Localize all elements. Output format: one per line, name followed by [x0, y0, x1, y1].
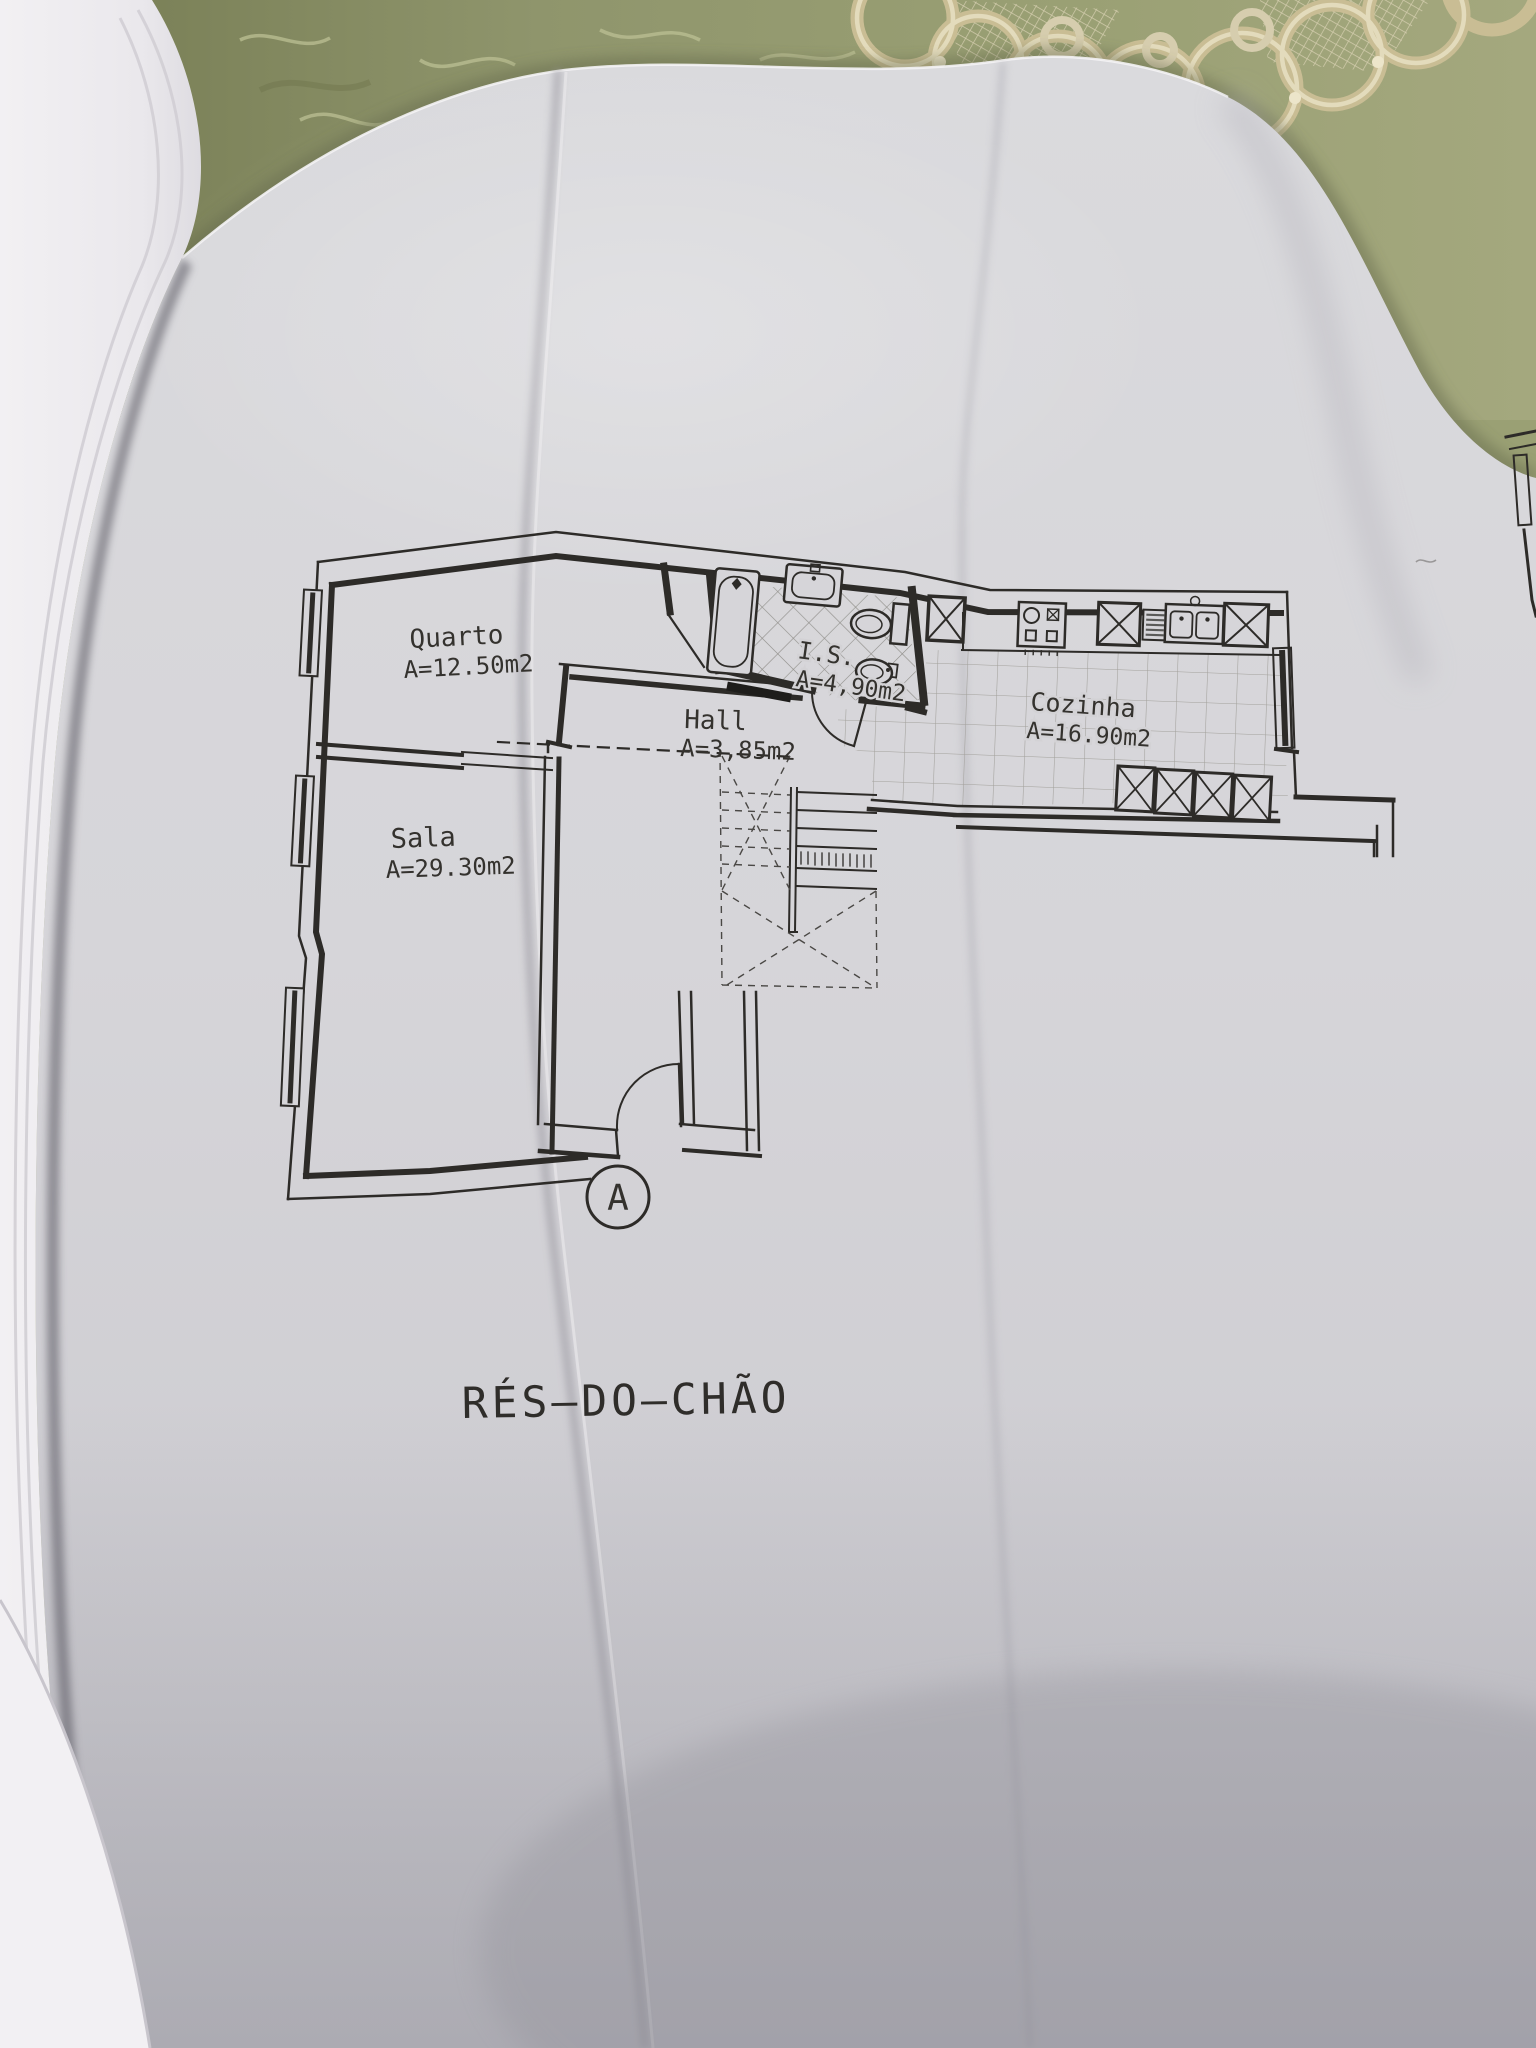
- label-hall-area: A=3,85m2: [680, 734, 797, 766]
- kitchen-xbox-1: [1097, 602, 1140, 645]
- plan-title: RÉS—DO—CHÃO: [461, 1372, 791, 1429]
- label-hall: Hall: [684, 705, 748, 737]
- window-quarto: [300, 590, 322, 677]
- photo-of-floor-plan-page: A Quarto A=12.50m2 Sala A=29.30m2 Hall A…: [0, 0, 1536, 2048]
- plan-page: [0, 57, 1536, 2048]
- label-quarto: Quarto: [409, 620, 504, 655]
- kitchen-xbox-2: [1223, 603, 1268, 647]
- bathroom-sink: [784, 562, 843, 607]
- entrance-marker-letter: A: [607, 1178, 629, 1219]
- window-sala-lower: [281, 988, 304, 1107]
- window-sala-upper: [291, 776, 314, 867]
- label-sala-area: A=29.30m2: [385, 851, 516, 884]
- side-wing-wall: [1296, 797, 1393, 800]
- label-sala: Sala: [390, 822, 456, 855]
- bathtub: [707, 568, 760, 675]
- kitchen-column-xbox: [927, 596, 965, 642]
